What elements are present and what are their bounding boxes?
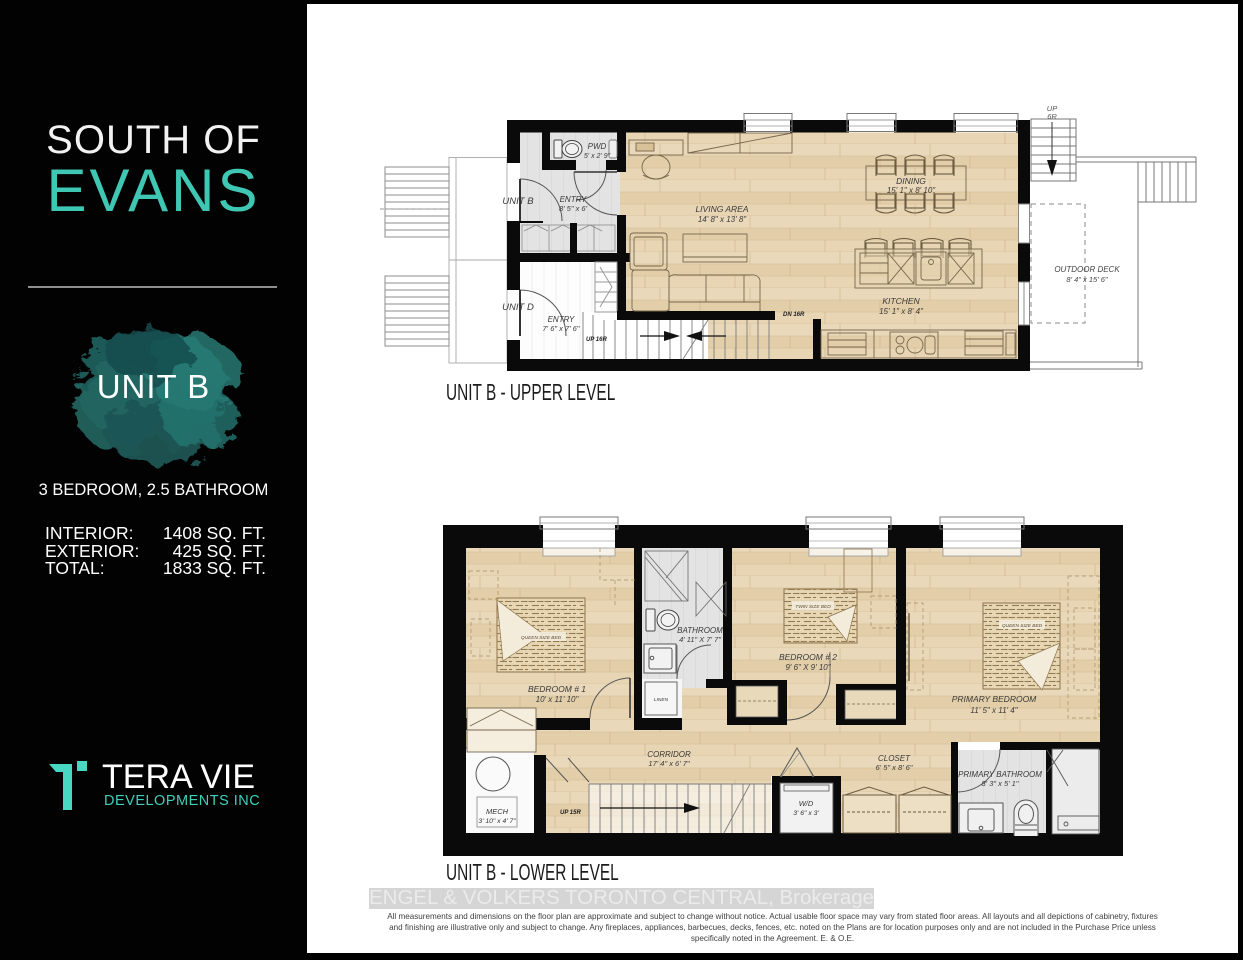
svg-text:CORRIDOR: CORRIDOR [647, 750, 691, 759]
svg-text:15' 1" x 8' 4": 15' 1" x 8' 4" [879, 307, 924, 316]
svg-text:DINING: DINING [896, 176, 926, 186]
svg-text:BEDROOM # 1: BEDROOM # 1 [528, 684, 586, 694]
svg-text:4' 11" X 7' 7": 4' 11" X 7' 7" [679, 635, 721, 644]
svg-text:DN 16R: DN 16R [783, 312, 805, 318]
svg-text:CLOSET: CLOSET [878, 754, 911, 763]
svg-text:3' 6" x 3': 3' 6" x 3' [793, 810, 819, 817]
svg-text:15' 1" x 8' 10": 15' 1" x 8' 10" [887, 186, 936, 195]
svg-text:LINEN: LINEN [654, 697, 669, 703]
svg-text:QUEEN SIZE BED: QUEEN SIZE BED [1002, 623, 1043, 629]
svg-text:UP 15R: UP 15R [560, 810, 581, 816]
svg-text:ENTRY: ENTRY [548, 315, 575, 324]
svg-text:BATHROOM: BATHROOM [677, 626, 723, 635]
svg-text:QUEEN SIZE BED: QUEEN SIZE BED [521, 635, 562, 641]
svg-text:ENTRY: ENTRY [560, 195, 587, 204]
svg-text:BEDROOM # 2: BEDROOM # 2 [779, 652, 837, 662]
svg-text:UNIT D: UNIT D [502, 302, 534, 313]
svg-text:6R: 6R [1047, 112, 1057, 121]
svg-text:3' 10" x 4' 7": 3' 10" x 4' 7" [478, 818, 516, 825]
svg-text:8' 4" x 15' 6": 8' 4" x 15' 6" [1066, 275, 1107, 284]
svg-text:5' x 2' 9": 5' x 2' 9" [584, 153, 611, 160]
svg-text:7' 6" x 7' 6": 7' 6" x 7' 6" [543, 324, 580, 333]
svg-text:PRIMARY BATHROOM: PRIMARY BATHROOM [958, 770, 1042, 779]
svg-text:9' 6" X 9' 10": 9' 6" X 9' 10" [785, 663, 831, 672]
svg-text:17' 4" x 6' 7": 17' 4" x 6' 7" [648, 759, 689, 768]
svg-text:OUTDOOR DECK: OUTDOOR DECK [1054, 265, 1120, 274]
svg-text:8' 3" x 5' 1": 8' 3" x 5' 1" [982, 779, 1019, 788]
svg-text:W/D: W/D [799, 799, 814, 808]
svg-text:MECH: MECH [486, 807, 509, 816]
svg-text:TWIN SIZE BED: TWIN SIZE BED [795, 604, 831, 610]
svg-text:UNIT B: UNIT B [502, 196, 534, 207]
svg-text:14' 8" x 13' 8": 14' 8" x 13' 8" [698, 215, 747, 224]
svg-text:PRIMARY BEDROOM: PRIMARY BEDROOM [952, 694, 1037, 704]
svg-text:11' 5" x 11' 4": 11' 5" x 11' 4" [970, 706, 1018, 715]
svg-text:8' 5" x 6': 8' 5" x 6' [559, 204, 588, 213]
svg-text:10' x 11' 10": 10' x 11' 10" [536, 695, 580, 704]
svg-text:UP 16R: UP 16R [586, 337, 607, 343]
svg-text:6' 5" x 8' 6": 6' 5" x 8' 6" [876, 763, 913, 772]
svg-text:PWD: PWD [588, 142, 607, 151]
svg-text:LIVING AREA: LIVING AREA [695, 204, 748, 214]
svg-text:KITCHEN: KITCHEN [882, 296, 920, 306]
